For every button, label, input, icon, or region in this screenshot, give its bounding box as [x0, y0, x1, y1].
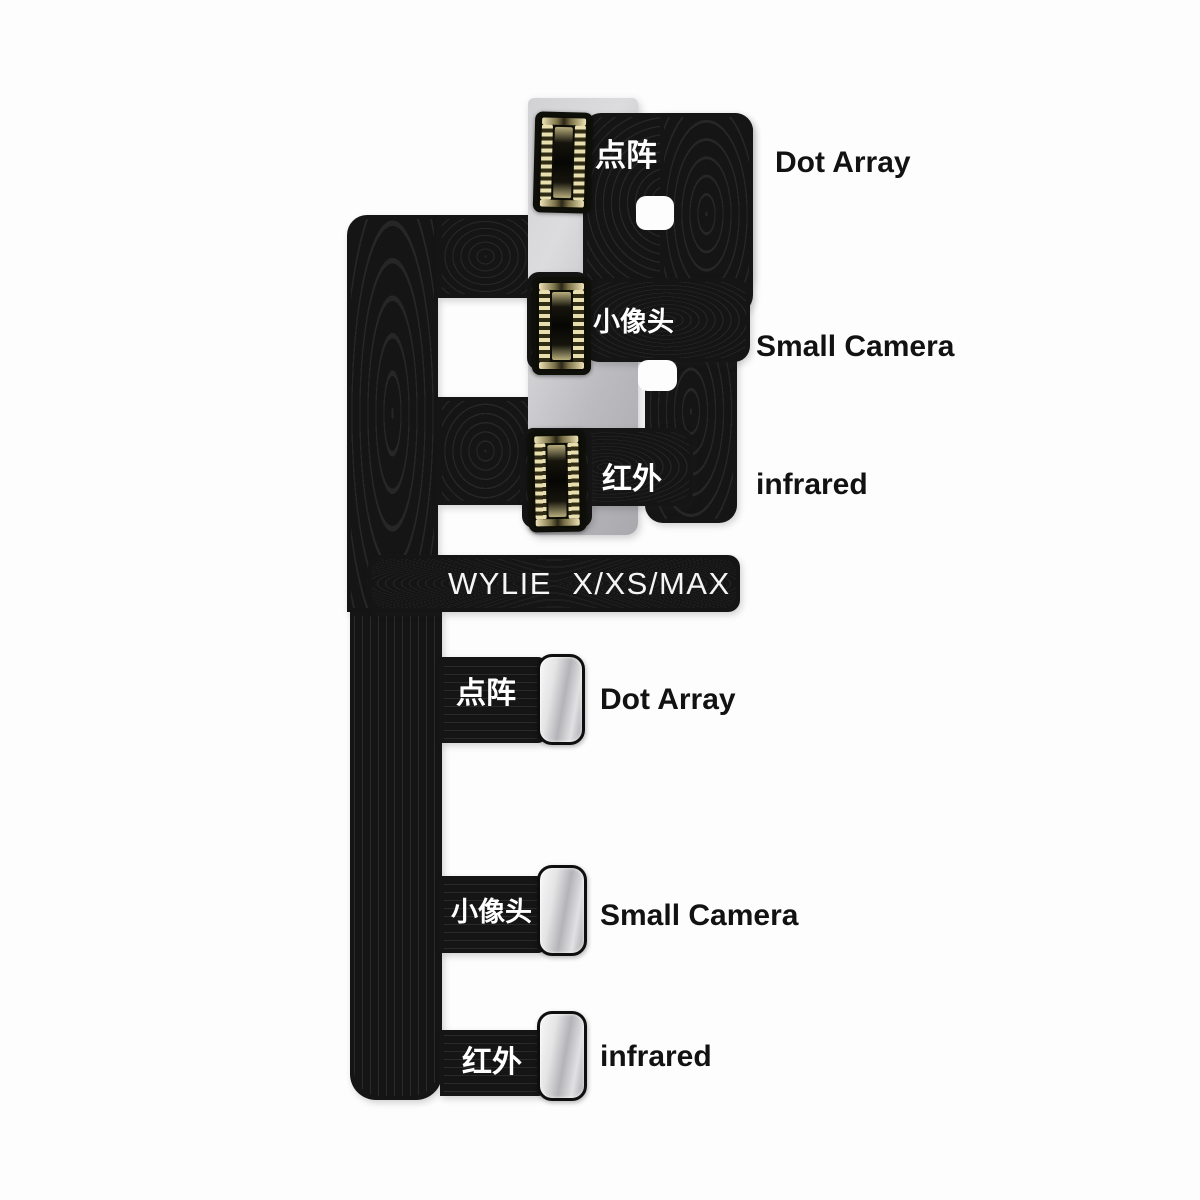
flex-segment-mid-top	[438, 215, 533, 298]
label-lower-dot-array-en: Dot Array	[600, 683, 736, 717]
connector-socket	[552, 292, 571, 360]
solder-pad-dot-array	[537, 654, 585, 745]
label-lower-small-camera-en: Small Camera	[600, 899, 798, 933]
connector-pins-right	[567, 443, 579, 519]
connector-pins-right	[573, 290, 584, 362]
product-photo-flex-cable: WYLIE X/XS/MAX 点阵 小像头 红外 Dot Array Small…	[0, 0, 1200, 1200]
connector-frame	[531, 434, 583, 529]
label-lower-infrared-en: infrared	[600, 1040, 712, 1074]
connector-socket	[547, 445, 566, 517]
label-upper-small-camera-en: Small Camera	[756, 330, 954, 364]
label-upper-dot-array-en: Dot Array	[775, 146, 911, 180]
label-upper-dot-array-cn: 点阵	[595, 139, 657, 173]
label-upper-small-camera-cn: 小像头	[593, 308, 674, 338]
label-lower-small-camera-cn: 小像头	[451, 898, 532, 928]
fpc-connector-infrared	[527, 430, 587, 533]
connector-frame	[536, 281, 587, 371]
flex-segment-mid-bottom	[438, 397, 533, 505]
fpc-connector-dot-array	[533, 111, 594, 213]
fpc-connector-small-camera	[532, 277, 591, 375]
flex-segment-left-column	[347, 215, 438, 612]
flex-tail-vertical-strip	[350, 612, 442, 1100]
connector-pins-left	[540, 124, 553, 199]
label-upper-infrared-cn: 红外	[602, 463, 662, 496]
solder-pad-small-camera	[537, 865, 587, 956]
solder-pad-infrared	[537, 1011, 587, 1101]
connector-pins-left	[534, 443, 546, 519]
model-label: WYLIE X/XS/MAX	[448, 566, 731, 602]
label-lower-dot-array-cn: 点阵	[456, 677, 516, 710]
connector-frame	[537, 115, 589, 209]
connector-pins-right	[573, 125, 586, 200]
label-upper-infrared-en: infrared	[756, 468, 868, 502]
flex-cutout-top	[636, 196, 674, 230]
flex-cutout-middle	[638, 360, 677, 391]
connector-pins-left	[539, 290, 550, 362]
label-lower-infrared-cn: 红外	[462, 1046, 522, 1079]
connector-socket	[553, 127, 573, 198]
